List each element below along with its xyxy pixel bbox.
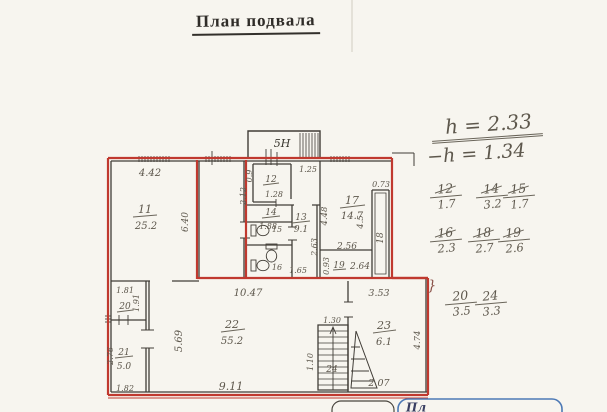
room-11-number: 11 [138, 203, 152, 216]
dim: 4.42 [138, 168, 161, 179]
toilet-icon [251, 225, 256, 236]
toilet-icon [257, 260, 269, 270]
room-21-number: 21 [117, 348, 129, 358]
room-13-area: 9.1 [294, 225, 308, 235]
room-14-number: 14 [265, 208, 277, 218]
dim: 2.12 [239, 187, 248, 206]
dim: 4.5 [356, 215, 366, 230]
room-21-area: 5.0 [117, 362, 132, 372]
blue-stamp-text: Пл [405, 401, 426, 412]
room-17-number: 17 [345, 194, 359, 207]
dim: 0.73 [372, 180, 390, 189]
projection-label: 5Н [274, 137, 291, 150]
dim: 2.63 [310, 238, 319, 257]
dim: 9.11 [219, 380, 244, 393]
room-22-area: 55.2 [221, 336, 243, 347]
toilet-icon [266, 250, 276, 262]
room-13-number: 13 [295, 213, 307, 223]
dim: 5.69 [174, 329, 185, 352]
dim: 0.9 [245, 170, 254, 183]
dim: 4.48 [320, 206, 330, 227]
room-12-number: 12 [265, 175, 277, 185]
dim: 4.74 [413, 331, 423, 351]
dim: 1.82 [116, 384, 134, 393]
dim: 2.76 [106, 347, 115, 366]
room-23-area: 6.1 [376, 337, 392, 348]
room-19-number: 19 [333, 261, 345, 271]
room-23-number: 23 [376, 319, 391, 332]
dim: 1.25 [299, 165, 317, 174]
black-stamp [332, 401, 394, 412]
dim: 1.81 [116, 286, 134, 295]
plan-labels: 11 25.2 4.42 6.40 5Н 12 1.25 1.28 0.9 2.… [106, 137, 436, 393]
room-16-number: 16 [272, 263, 282, 272]
room-19-area: 2.64 [349, 262, 370, 272]
dim: 3.53 [368, 288, 389, 299]
room-15-number: 15 [272, 225, 282, 234]
room-11-area: 25.2 [134, 221, 157, 232]
dim: 1.65 [289, 266, 307, 275]
dim: 2.56 [336, 242, 357, 252]
toilet-icon [251, 260, 256, 271]
dim: 1.30 [323, 316, 341, 325]
dim: 10.47 [234, 288, 263, 299]
brace-annotation: } [428, 278, 437, 294]
room-20-number: 20 [118, 302, 131, 312]
dim: 1.28 [265, 190, 283, 199]
room-18-number: 18 [376, 232, 386, 244]
room-24-number: 24 [325, 365, 338, 375]
dim: 0.93 [322, 257, 331, 275]
dim: 6.40 [181, 212, 191, 232]
floor-plan: 11 25.2 4.42 6.40 5Н 12 1.25 1.28 0.9 2.… [0, 0, 607, 412]
dim: 2.07 [367, 378, 390, 389]
room-22-number: 22 [224, 318, 239, 331]
dim: 1.10 [306, 353, 315, 371]
dim: 1.91 [132, 294, 141, 312]
